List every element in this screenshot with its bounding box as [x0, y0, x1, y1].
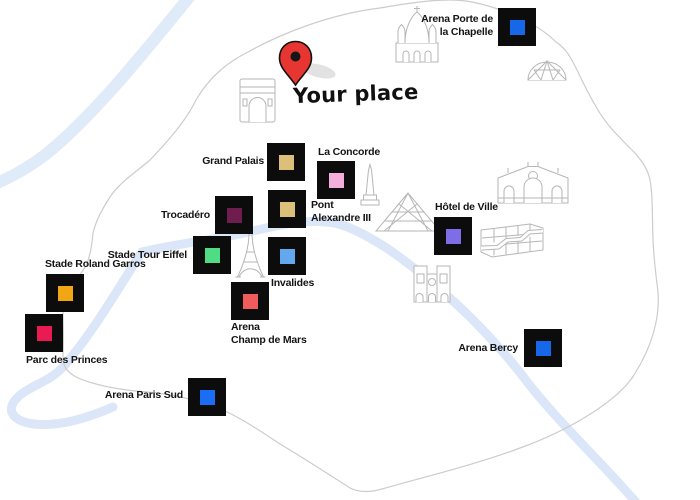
- river-northwest: [0, 0, 195, 186]
- venue-chip: [446, 229, 461, 244]
- venue-marker-parc-des-princes[interactable]: [25, 314, 63, 352]
- venue-label-arena-paris-sud: Arena Paris Sud: [105, 389, 183, 402]
- geodesic-dome-icon: [528, 61, 566, 80]
- venue-marker-stade-roland-garros[interactable]: [46, 274, 84, 312]
- venue-marker-arena-paris-sud[interactable]: [188, 378, 226, 416]
- grand-station-icon: [498, 162, 568, 203]
- venue-chip: [227, 208, 242, 223]
- venue-chip: [280, 202, 295, 217]
- venue-label-pont-alexandre-iii: Pont Alexandre III: [311, 199, 371, 224]
- map-art-layer: [0, 0, 700, 500]
- venue-label-stade-roland-garros: Stade Roland Garros: [45, 258, 146, 271]
- venue-label-arena-bercy: Arena Bercy: [458, 342, 518, 355]
- venue-marker-arena-porte-de-la-chapelle[interactable]: [498, 8, 536, 46]
- notre-dame-icon: [414, 266, 450, 302]
- venue-label-invalides: Invalides: [271, 277, 314, 290]
- your-place-label: Your place: [293, 80, 419, 108]
- venue-marker-arena-champ-de-mars[interactable]: [231, 282, 269, 320]
- venue-marker-pont-alexandre-iii[interactable]: [268, 190, 306, 228]
- louvre-pyramid-icon: [376, 193, 440, 231]
- venue-chip: [243, 294, 258, 309]
- venue-chip: [37, 326, 52, 341]
- venue-chip: [329, 173, 344, 188]
- venue-chip: [205, 248, 220, 263]
- venue-marker-stade-tour-eiffel[interactable]: [193, 236, 231, 274]
- venue-marker-grand-palais[interactable]: [267, 143, 305, 181]
- venue-chip: [536, 341, 551, 356]
- venue-label-arena-champ-de-mars: Arena Champ de Mars: [231, 321, 307, 346]
- venue-marker-hotel-de-ville[interactable]: [434, 217, 472, 255]
- paris-venues-map: Your place Arena Porte de la Chapelle Gr…: [0, 0, 700, 500]
- venue-label-parc-des-princes: Parc des Princes: [26, 354, 107, 367]
- venue-label-hotel-de-ville: Hôtel de Ville: [435, 201, 498, 214]
- venue-chip: [280, 249, 295, 264]
- venue-chip: [279, 155, 294, 170]
- your-place-pin: [280, 42, 312, 86]
- city-blocks-icon: [481, 224, 543, 257]
- venue-label-grand-palais: Grand Palais: [202, 155, 264, 168]
- arc-de-triomphe-icon: [240, 79, 275, 122]
- venue-chip: [200, 390, 215, 405]
- venue-label-la-concorde: La Concorde: [318, 146, 380, 159]
- venue-marker-trocadero[interactable]: [215, 196, 253, 234]
- venue-label-arena-porte-de-la-chapelle: Arena Porte de la Chapelle: [421, 13, 493, 38]
- venue-marker-arena-bercy[interactable]: [524, 329, 562, 367]
- venue-marker-invalides[interactable]: [268, 237, 306, 275]
- venue-label-trocadero: Trocadéro: [161, 209, 210, 222]
- venue-chip: [510, 20, 525, 35]
- venue-chip: [58, 286, 73, 301]
- venue-marker-la-concorde[interactable]: [317, 161, 355, 199]
